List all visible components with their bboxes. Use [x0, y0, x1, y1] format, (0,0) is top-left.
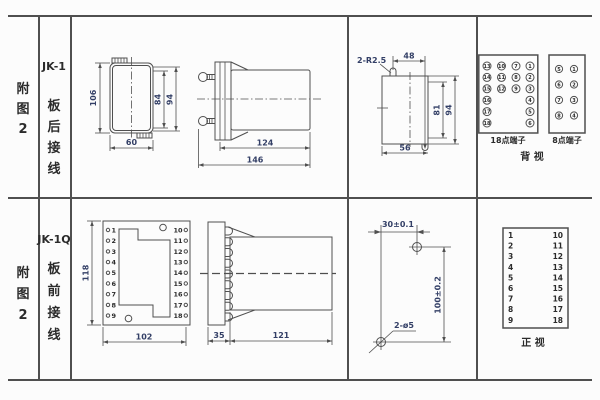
table-terminal-number: 7: [508, 295, 513, 304]
terminal-point-number: 6: [557, 82, 561, 88]
dim-text-146: 146: [247, 156, 264, 165]
dim-text-124: 124: [257, 139, 274, 148]
dim-118: 118: [82, 221, 102, 325]
terminal-number: 11: [173, 237, 183, 245]
dim-text-2-o5: 2-ø5: [394, 321, 414, 330]
table-terminal-number: 11: [553, 242, 563, 251]
terminal-point-number: 2: [528, 75, 532, 81]
terminal-lug: [225, 281, 233, 289]
relay-case-outline: [110, 57, 153, 139]
terminal-number: 15: [173, 280, 183, 288]
figure-label-bottom: 附 图 2: [8, 263, 38, 326]
terminal-point-number: 1: [572, 67, 576, 73]
jk1q-front-view-drawing: 123456789 101112131415161718 118 102: [85, 210, 200, 350]
terminal-circle: [106, 282, 109, 285]
terminal-number: 8: [112, 301, 117, 309]
figure-char: 2: [8, 120, 38, 140]
terminal-point-number: 7: [557, 98, 561, 104]
terminal-point-number: 8: [514, 75, 518, 81]
wiring-char: 线: [38, 159, 70, 180]
table-terminal-number: 18: [553, 316, 563, 325]
terminal-point-number: 17: [484, 109, 491, 115]
table-terminal-number: 16: [553, 295, 563, 304]
table-terminal-number: 6: [508, 284, 513, 293]
terminal-number: 3: [112, 248, 117, 256]
figure-char: 附: [8, 263, 38, 284]
dim-100: 100±0.2: [434, 247, 445, 342]
figure-label-top: 附 图 2: [8, 80, 38, 140]
terminal-point-number: 1: [528, 64, 532, 70]
terminal-circle: [106, 271, 109, 274]
terminal-lug: [225, 249, 233, 257]
terminal-number: 18: [173, 312, 183, 320]
figure-char: 图: [8, 100, 38, 120]
terminal-circle: [184, 282, 187, 285]
dim-35: 35: [208, 312, 230, 345]
dim-106: 106: [89, 63, 110, 133]
dim-text-60: 60: [126, 138, 138, 147]
terminal-box-18pt-label: 18点端子: [490, 135, 525, 145]
terminal-box-8pt-label: 8点端子: [552, 135, 582, 145]
terminal-point-number: 15: [484, 87, 491, 93]
dim-text-35: 35: [213, 331, 225, 340]
dim-text-84: 84: [154, 94, 163, 106]
front-terminals-left: 123456789: [106, 226, 116, 320]
terminal-circle: [106, 303, 109, 306]
dim-60: 60: [110, 135, 153, 151]
model-label-jk1q: JK-1Q: [37, 233, 71, 246]
dim-121: 121: [230, 312, 332, 345]
sheet-row-divider: [8, 197, 592, 199]
wiring-mode-top: 板 后 接 线: [38, 96, 70, 180]
table-terminal-number: 17: [553, 305, 563, 314]
mounting-hole-bottom: [125, 315, 132, 322]
wiring-mode-bottom: 板 前 接 线: [38, 259, 70, 347]
figure-char: 附: [8, 80, 38, 100]
dim-text-94-cutout: 94: [445, 104, 454, 116]
terminal-point-number: 3: [572, 98, 576, 104]
jk1-panel-cutout-drawing: 2-R2.5 48 81 94 56: [355, 50, 470, 165]
table-terminal-number: 5: [508, 273, 513, 282]
table-terminal-number: 8: [508, 305, 513, 314]
terminal-grid-18pt: 131415161718101112789123456: [483, 62, 534, 127]
terminal-screw-top: [199, 73, 216, 82]
hole-diameter-callout: 2-ø5: [369, 321, 416, 353]
terminal-point-number: 18: [484, 121, 491, 127]
terminal-circle: [184, 239, 187, 242]
wiring-char: 接: [38, 303, 70, 325]
terminal-point-number: 4: [528, 98, 532, 104]
terminal-point-number: 11: [498, 75, 505, 81]
table-terminal-number: 10: [553, 231, 563, 240]
terminal-point-number: 5: [528, 109, 532, 115]
dim-text-100: 100±0.2: [434, 276, 443, 314]
terminal-point-number: 5: [557, 67, 561, 73]
table-terminal-number: 15: [553, 284, 563, 293]
terminal-number: 1: [112, 226, 117, 234]
terminal-circle: [184, 293, 187, 296]
model-label-jk1: JK-1: [38, 60, 70, 73]
terminal-number: 17: [173, 301, 182, 309]
terminal-number: 16: [173, 291, 183, 299]
terminal-number: 2: [112, 237, 117, 245]
terminal-point-number: 6: [528, 121, 532, 127]
table-terminal-number: 13: [553, 263, 563, 272]
terminal-grid-8pt: 56781234: [555, 65, 577, 119]
dim-text-81: 81: [433, 104, 442, 116]
front-terminals-right: 101112131415161718: [173, 226, 187, 320]
table-terminal-number: 4: [508, 263, 513, 272]
dim-text-2-r2.5: 2-R2.5: [357, 56, 387, 65]
figure-char: 2: [8, 305, 38, 326]
rear-view-label: 背 视: [520, 150, 543, 163]
jk1-front-view-drawing: 106 84 94 60: [85, 45, 195, 160]
wiring-char: 板: [38, 96, 70, 117]
sheet-col-divider-2: [70, 15, 72, 381]
terminal-point-number: 16: [484, 98, 491, 104]
table-terminal-number: 9: [508, 316, 513, 325]
relay-body: [231, 70, 310, 130]
terminal-number: 13: [173, 259, 182, 267]
terminal-circle: [106, 293, 109, 296]
terminal-number: 7: [112, 291, 117, 299]
wiring-char: 后: [38, 117, 70, 138]
terminal-circle: [106, 314, 109, 317]
table-terminal-number: 2: [508, 242, 513, 251]
terminal-number: 14: [173, 269, 183, 277]
terminal-circle: [106, 260, 109, 263]
table-terminal-number: 3: [508, 252, 513, 261]
terminal-circle: [184, 314, 187, 317]
wiring-char: 前: [38, 281, 70, 303]
terminal-lug: [225, 302, 233, 310]
dim-text-121: 121: [273, 331, 290, 340]
jk1-side-view-drawing: 124 146: [195, 50, 330, 175]
terminal-point-number: 12: [498, 87, 505, 93]
terminal-point-number: 7: [514, 64, 518, 70]
dim-56: 56: [382, 144, 428, 157]
terminal-table-left-column: 123456789: [508, 231, 513, 325]
table-terminal-number: 12: [553, 252, 563, 261]
dim-text-106: 106: [89, 89, 98, 106]
terminal-number: 9: [112, 312, 117, 320]
dim-30: 30±0.1: [368, 220, 430, 350]
terminal-number: 6: [112, 280, 117, 288]
terminal-point-number: 4: [572, 113, 576, 119]
terminal-table-right-column: 101112131415161718: [553, 231, 563, 325]
dim-text-56: 56: [399, 144, 411, 153]
terminal-screw-bottom: [199, 117, 216, 126]
top-terminal-block: [112, 58, 127, 63]
front-view-label: 正 视: [521, 336, 544, 349]
table-terminal-number: 1: [508, 231, 513, 240]
dim-text-94: 94: [166, 94, 175, 106]
terminal-circle: [184, 303, 187, 306]
dim-102: 102: [103, 327, 186, 346]
terminal-lug: [225, 238, 233, 246]
dim-text-48: 48: [403, 52, 415, 61]
dim-text-118: 118: [82, 264, 91, 281]
dim-text-102: 102: [136, 333, 153, 342]
bottom-terminal-block: [137, 133, 152, 138]
terminal-circle: [106, 239, 109, 242]
terminal-number: 10: [173, 226, 183, 234]
terminal-point-number: 3: [528, 87, 532, 93]
cutout-outline: [377, 68, 428, 151]
sheet-col-divider-3: [347, 15, 349, 381]
wiring-char: 线: [38, 325, 70, 347]
figure-char: 图: [8, 284, 38, 305]
sheet-border-bottom: [8, 379, 592, 381]
terminal-number: 12: [173, 248, 182, 256]
jk1q-side-view-drawing: 35 121: [198, 215, 338, 350]
terminal-lug: [225, 292, 233, 300]
dim-text-30: 30±0.1: [382, 220, 414, 229]
front-terminal-table: 123456789 101112131415161718 正 视: [495, 220, 585, 355]
wiring-char: 接: [38, 138, 70, 159]
engineering-drawing-sheet: 附 图 2 JK-1 板 后 接 线 附 图 2 JK-1Q 板 前 接 线: [0, 0, 600, 400]
terminal-circle: [106, 250, 109, 253]
terminal-circle: [184, 228, 187, 231]
terminal-point-number: 9: [514, 87, 518, 93]
terminal-point-number: 13: [484, 64, 491, 70]
terminal-lug: [225, 259, 233, 267]
terminal-number: 4: [112, 259, 117, 267]
terminal-point-number: 14: [484, 75, 491, 81]
terminal-circle: [106, 228, 109, 231]
terminal-circle: [184, 250, 187, 253]
table-terminal-number: 14: [553, 273, 563, 282]
rear-terminal-views: 131415161718101112789123456 18点端子 567812…: [478, 50, 590, 170]
terminal-number: 5: [112, 269, 117, 277]
dim-124: 124: [220, 132, 310, 168]
radius-callout: 2-R2.5: [357, 56, 391, 73]
terminal-circle: [184, 260, 187, 263]
mounting-hole-top: [409, 243, 451, 252]
sheet-border-top: [8, 15, 592, 17]
wiring-char: 板: [38, 259, 70, 281]
panel-drilling-plan: 30±0.1 100±0.2 2-ø5: [360, 215, 470, 357]
terminal-box-8pt: [549, 55, 585, 133]
terminal-circle: [184, 271, 187, 274]
terminal-point-number: 10: [498, 64, 505, 70]
terminal-point-number: 2: [572, 82, 576, 88]
case-opening-outline: [119, 229, 170, 317]
mounting-hole-top: [160, 224, 167, 231]
terminal-point-number: 8: [557, 113, 561, 119]
